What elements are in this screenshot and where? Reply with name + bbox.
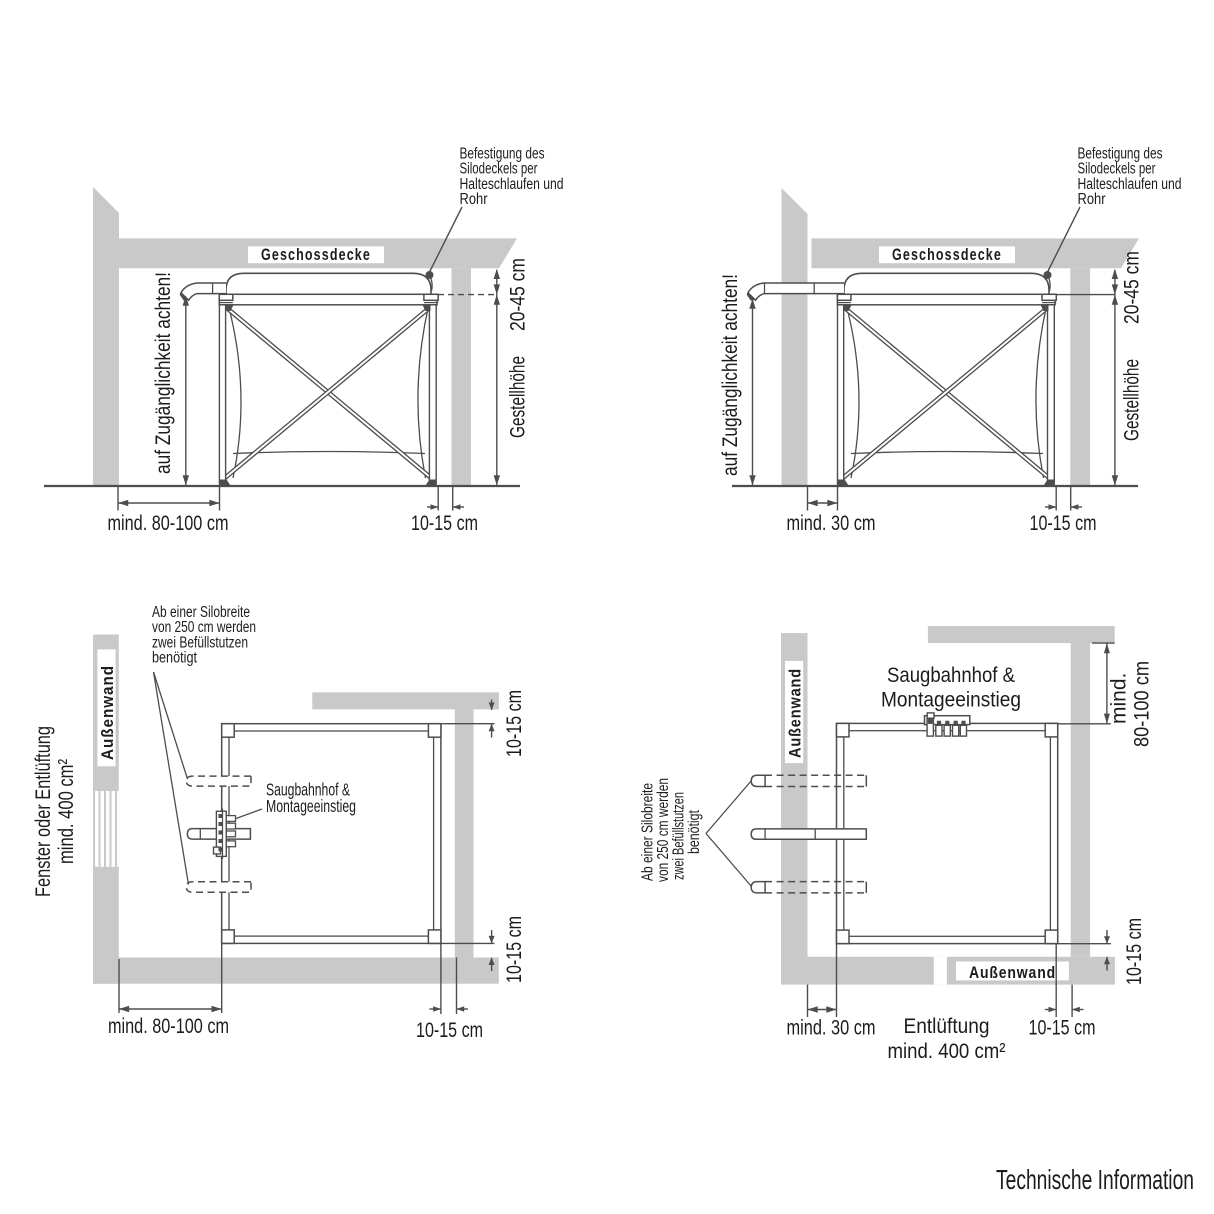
svg-text:mind. 80-100 cm: mind. 80-100 cm: [108, 1015, 229, 1038]
svg-text:20-45 cm: 20-45 cm: [507, 258, 530, 331]
svg-text:Saugbahnhof &: Saugbahnhof &: [887, 664, 1015, 687]
svg-text:20-45 cm: 20-45 cm: [1121, 251, 1144, 324]
svg-text:80-100 cm: 80-100 cm: [1131, 661, 1154, 747]
svg-text:mind. 30 cm: mind. 30 cm: [787, 1017, 876, 1040]
svg-text:10-15 cm: 10-15 cm: [1030, 512, 1097, 535]
svg-text:von 250 cm werden: von 250 cm werden: [655, 778, 672, 882]
svg-text:Ab einer Silobreite: Ab einer Silobreite: [640, 783, 657, 881]
svg-text:Außenwand: Außenwand: [99, 665, 117, 760]
svg-text:mind. 80-100 cm: mind. 80-100 cm: [108, 512, 229, 535]
svg-text:Geschossdecke: Geschossdecke: [892, 246, 1002, 264]
svg-text:Technische Information: Technische Information: [996, 1164, 1194, 1195]
svg-text:mind. 400 cm²: mind. 400 cm²: [55, 759, 78, 864]
svg-text:Geschossdecke: Geschossdecke: [261, 246, 371, 264]
svg-text:Montageeinstieg: Montageeinstieg: [881, 689, 1021, 712]
svg-text:benötigt: benötigt: [686, 809, 703, 854]
svg-text:Entlüftung: Entlüftung: [904, 1015, 990, 1038]
svg-text:Fenster oder Entlüftung: Fenster oder Entlüftung: [32, 726, 55, 897]
svg-text:Außenwand: Außenwand: [969, 964, 1056, 982]
svg-text:benötigt: benötigt: [152, 650, 198, 667]
svg-text:Gestellhöhe: Gestellhöhe: [507, 356, 530, 438]
svg-text:10-15 cm: 10-15 cm: [503, 690, 526, 757]
svg-text:mind. 30 cm: mind. 30 cm: [787, 512, 876, 535]
svg-text:Gestellhöhe: Gestellhöhe: [1121, 359, 1144, 441]
svg-text:mind. 400 cm²: mind. 400 cm²: [888, 1040, 1006, 1063]
svg-text:10-15 cm: 10-15 cm: [411, 512, 478, 535]
svg-text:Außenwand: Außenwand: [787, 668, 805, 758]
svg-text:Rohr: Rohr: [1078, 191, 1106, 208]
svg-text:mind.: mind.: [1108, 673, 1131, 724]
svg-text:auf Zugänglichkeit achten!: auf Zugänglichkeit achten!: [152, 272, 175, 474]
svg-text:auf Zugänglichkeit achten!: auf Zugänglichkeit achten!: [719, 274, 742, 476]
svg-text:zwei Befüllstutzen: zwei Befüllstutzen: [671, 792, 688, 880]
svg-text:Montageeinstieg: Montageeinstieg: [266, 796, 356, 816]
svg-text:10-15 cm: 10-15 cm: [416, 1019, 483, 1042]
svg-text:10-15 cm: 10-15 cm: [1123, 918, 1146, 985]
svg-text:10-15 cm: 10-15 cm: [503, 916, 526, 983]
svg-text:10-15 cm: 10-15 cm: [1029, 1017, 1096, 1040]
svg-text:Rohr: Rohr: [460, 191, 488, 208]
